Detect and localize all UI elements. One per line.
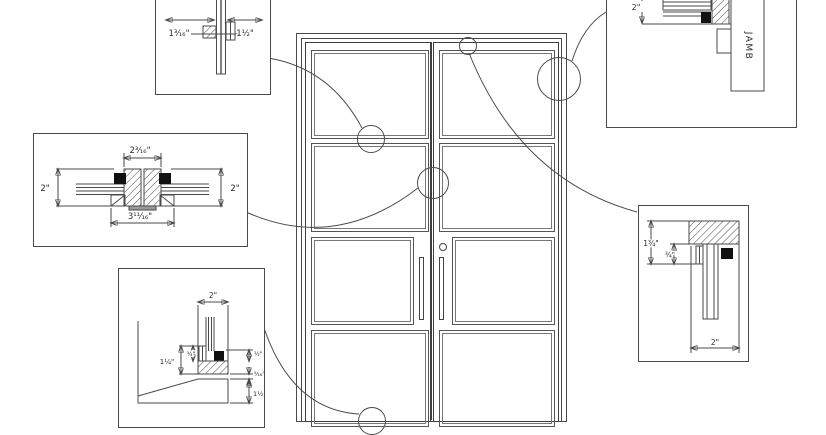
door-handle-left	[419, 257, 424, 320]
callout-circle-meeting-stile	[417, 167, 449, 199]
dim-head-left: 1¾"	[643, 239, 659, 248]
dim-stile-height-right: 2"	[230, 184, 239, 194]
glass-panel	[439, 143, 555, 232]
bottom-plate	[129, 206, 156, 210]
dim-jamb: 2"	[632, 3, 641, 12]
dim-head-mid: ¾"	[665, 251, 675, 259]
glass-panel	[311, 237, 414, 325]
detail-box-meeting-stiles: 2³⁄₁₆" 2" 2" 3¹¹⁄₁₆"	[33, 133, 248, 247]
jamb-section-drawing: JAMB 2"	[607, 0, 796, 127]
mullion-clamp-left	[203, 26, 216, 38]
dim-sill-mid: ¾"	[187, 351, 196, 358]
glass-left	[76, 184, 124, 195]
gasket	[214, 351, 224, 361]
glass-panel	[452, 237, 555, 325]
callout-circle-jamb	[537, 57, 581, 101]
detail-box-mullion: 1³⁄₁₆" 1½"	[155, 0, 271, 95]
jamb-label: JAMB	[743, 31, 753, 61]
dim-sill-right-top: ½"	[254, 351, 263, 358]
stile-left	[124, 169, 141, 206]
sill-section-drawing: 2" 1¼" ¾" ½" ⁵⁄₁₆" 1½"	[119, 269, 264, 427]
dim-sill-right-mid: ⁵⁄₁₆"	[254, 371, 264, 378]
dim-assembly-width: 3¹¹⁄₁₆"	[128, 212, 152, 222]
dim-sill-top: 2"	[209, 291, 217, 300]
glass-vertical	[206, 317, 214, 351]
stile-right	[144, 169, 161, 206]
callout-circle-mullion	[357, 125, 385, 153]
leader-jamb	[572, 12, 606, 61]
door-handle-right	[439, 257, 444, 320]
dim-head-bottom: 2"	[711, 338, 719, 347]
meeting-stiles-drawing: 2³⁄₁₆" 2" 2" 3¹¹⁄₁₆"	[34, 134, 247, 246]
gasket	[701, 12, 711, 23]
callout-circle-sill	[358, 407, 386, 435]
glass-panel	[439, 50, 555, 139]
glass-panel	[439, 330, 555, 427]
dim-stile-height-left: 2"	[40, 184, 49, 194]
anchor-tab	[717, 29, 731, 53]
dim-sill-right-bottom: 1½"	[253, 390, 264, 398]
lock-cylinder	[439, 243, 447, 251]
head-block	[689, 221, 739, 244]
dim-mullion-right: 1½"	[236, 29, 254, 39]
glass-right	[161, 184, 209, 195]
dim-mullion-left: 1³⁄₁₆"	[169, 29, 190, 39]
detail-box-sill: 2" 1¼" ¾" ½" ⁵⁄₁₆" 1½"	[118, 268, 265, 428]
head-section-drawing: 1¾" ¾" 2"	[639, 206, 748, 361]
meeting-stile-centerline	[430, 42, 432, 420]
gasket	[721, 248, 733, 259]
glass-vertical	[703, 244, 718, 319]
callout-circle-head	[459, 37, 477, 55]
gasket-left	[114, 173, 126, 184]
detail-box-jamb: JAMB 2"	[606, 0, 797, 128]
architectural-drawing-sheet: { "details": { "mullion": { "dim_left": …	[0, 0, 826, 420]
jamb-block	[712, 0, 729, 24]
glass-panel	[311, 143, 429, 232]
sill-block	[198, 361, 228, 374]
mullion-section-drawing: 1³⁄₁₆" 1½"	[156, 0, 270, 94]
dim-sill-left: 1¼"	[160, 358, 174, 366]
glass-stack	[663, 0, 711, 10]
gasket-right	[159, 173, 171, 184]
dim-stile-pair-width: 2³⁄₁₆"	[130, 146, 151, 156]
detail-box-head: 1¾" ¾" 2"	[638, 205, 749, 362]
